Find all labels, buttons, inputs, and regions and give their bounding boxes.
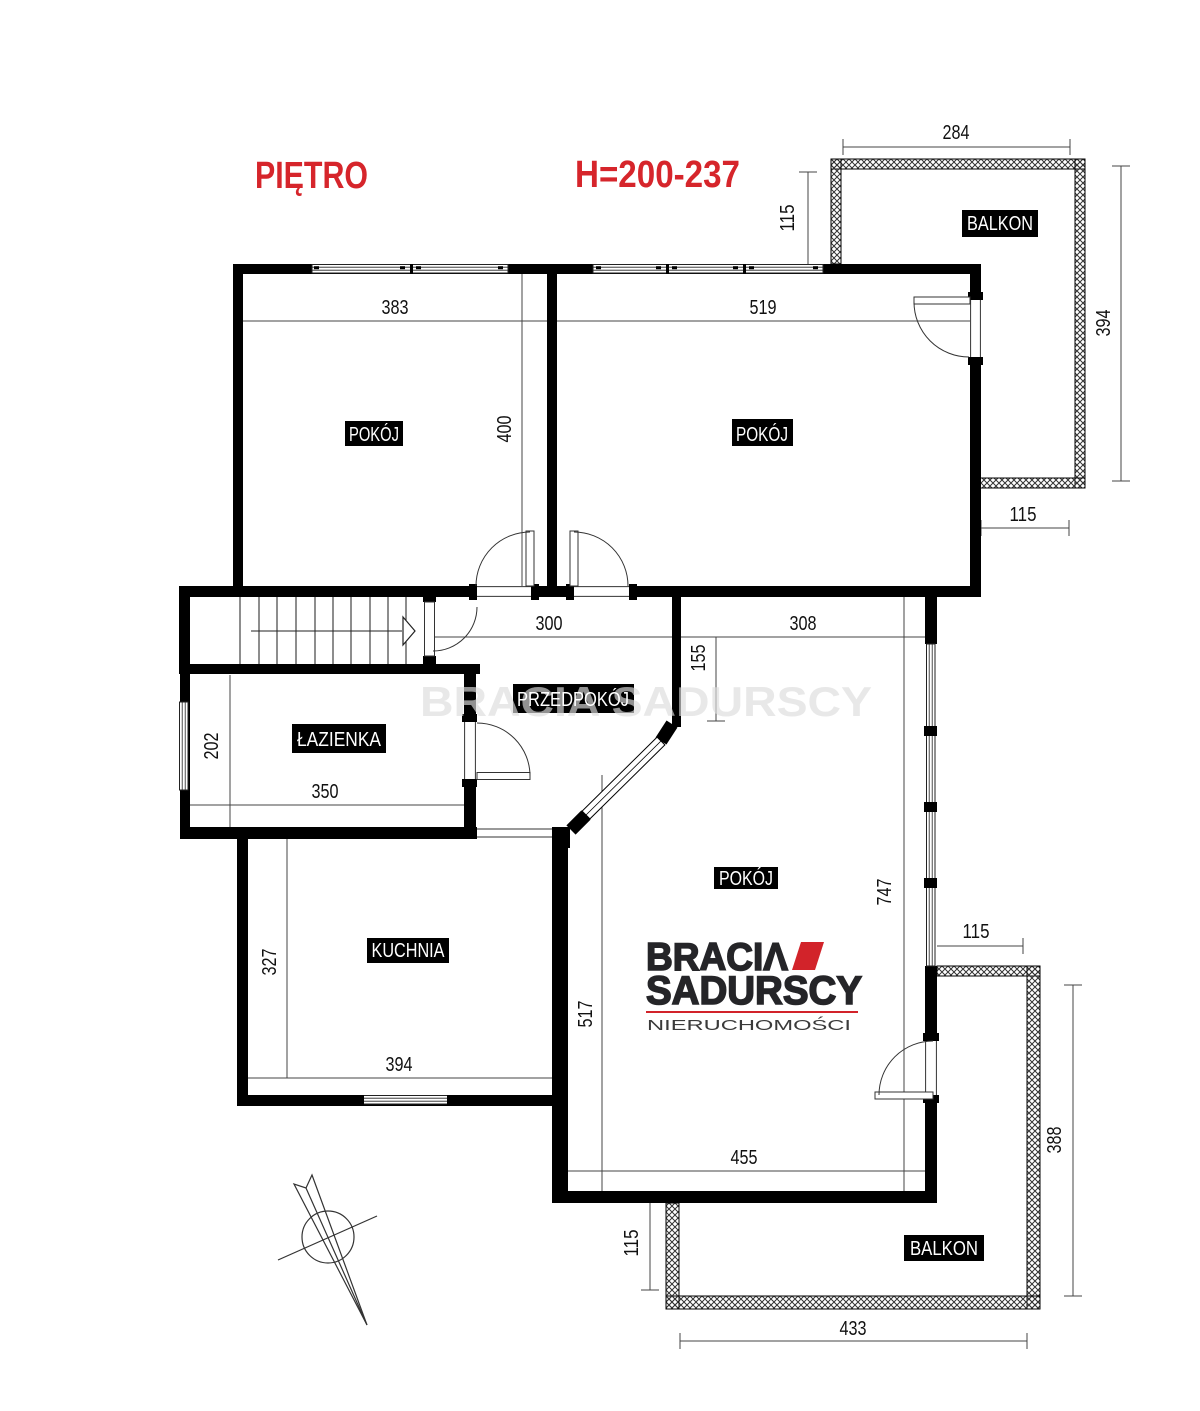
- svg-text:300: 300: [536, 613, 563, 635]
- svg-text:POKÓJ: POKÓJ: [736, 423, 788, 446]
- svg-text:H=200-237: H=200-237: [575, 154, 740, 196]
- svg-text:PRZEDPOKÓJ: PRZEDPOKÓJ: [517, 688, 629, 711]
- svg-text:394: 394: [386, 1054, 413, 1076]
- svg-text:517: 517: [575, 1001, 597, 1028]
- svg-text:KUCHNIA: KUCHNIA: [372, 940, 446, 962]
- svg-text:SADURSCY: SADURSCY: [646, 969, 862, 1013]
- svg-text:202: 202: [201, 733, 223, 760]
- svg-text:284: 284: [943, 122, 970, 144]
- svg-text:POKÓJ: POKÓJ: [349, 423, 399, 446]
- svg-text:NIERUCHOMOŚCI: NIERUCHOMOŚCI: [647, 1016, 851, 1034]
- svg-text:BRACIA SADURSCY: BRACIA SADURSCY: [420, 678, 872, 725]
- svg-text:BALKON: BALKON: [910, 1238, 978, 1260]
- svg-text:327: 327: [259, 949, 281, 976]
- svg-text:308: 308: [790, 613, 817, 635]
- svg-text:433: 433: [840, 1318, 867, 1340]
- svg-text:115: 115: [963, 921, 990, 943]
- svg-text:383: 383: [382, 297, 409, 319]
- svg-text:115: 115: [621, 1230, 643, 1257]
- svg-text:115: 115: [1010, 504, 1037, 526]
- svg-text:ŁAZIENKA: ŁAZIENKA: [297, 729, 382, 751]
- svg-text:155: 155: [688, 645, 710, 672]
- svg-text:747: 747: [874, 879, 896, 906]
- svg-text:394: 394: [1093, 310, 1115, 337]
- svg-text:POKÓJ: POKÓJ: [719, 867, 773, 890]
- svg-text:388: 388: [1044, 1127, 1066, 1154]
- svg-text:455: 455: [731, 1147, 758, 1169]
- svg-text:115: 115: [777, 205, 799, 232]
- svg-text:400: 400: [494, 416, 516, 443]
- svg-text:519: 519: [750, 297, 777, 319]
- svg-text:350: 350: [312, 781, 339, 803]
- svg-text:PIĘTRO: PIĘTRO: [255, 155, 368, 197]
- svg-text:BALKON: BALKON: [967, 213, 1033, 235]
